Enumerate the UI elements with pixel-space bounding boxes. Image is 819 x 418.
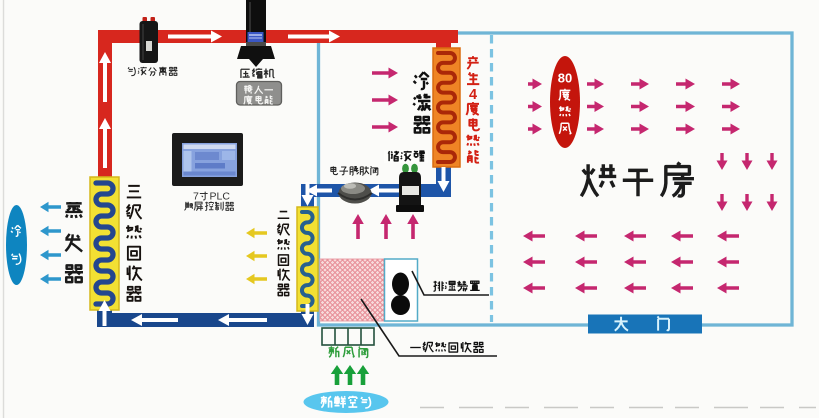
svg-text:80: 80 xyxy=(558,71,572,86)
svg-text:4: 4 xyxy=(469,87,477,103)
svg-text:PLC: PLC xyxy=(210,191,231,203)
svg-text:7: 7 xyxy=(193,191,199,203)
